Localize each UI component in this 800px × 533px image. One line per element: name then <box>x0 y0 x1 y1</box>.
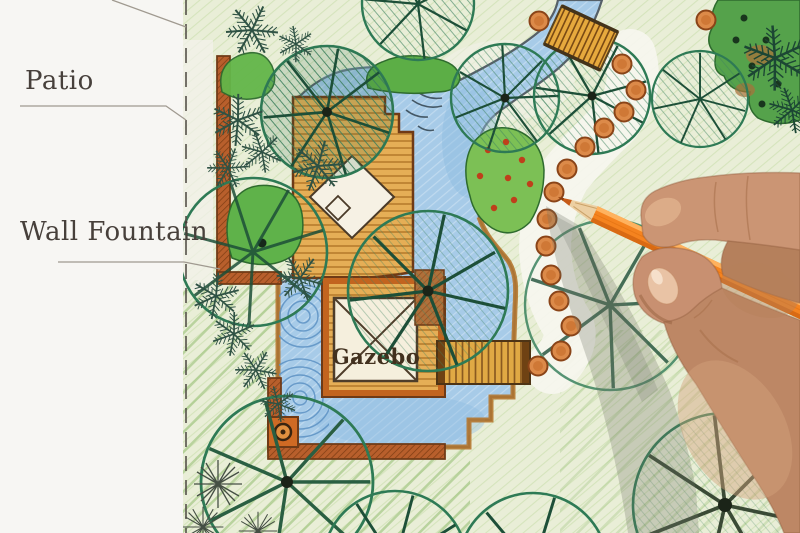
plan-drawing: Gazebo Patio Wall Fountain <box>0 0 800 533</box>
gazebo-label: Gazebo <box>332 344 421 369</box>
landscape-plan-photo: Gazebo Patio Wall Fountain <box>0 0 800 533</box>
wall-fountain-label: Wall Fountain <box>20 217 208 247</box>
patio-label: Patio <box>25 66 94 96</box>
